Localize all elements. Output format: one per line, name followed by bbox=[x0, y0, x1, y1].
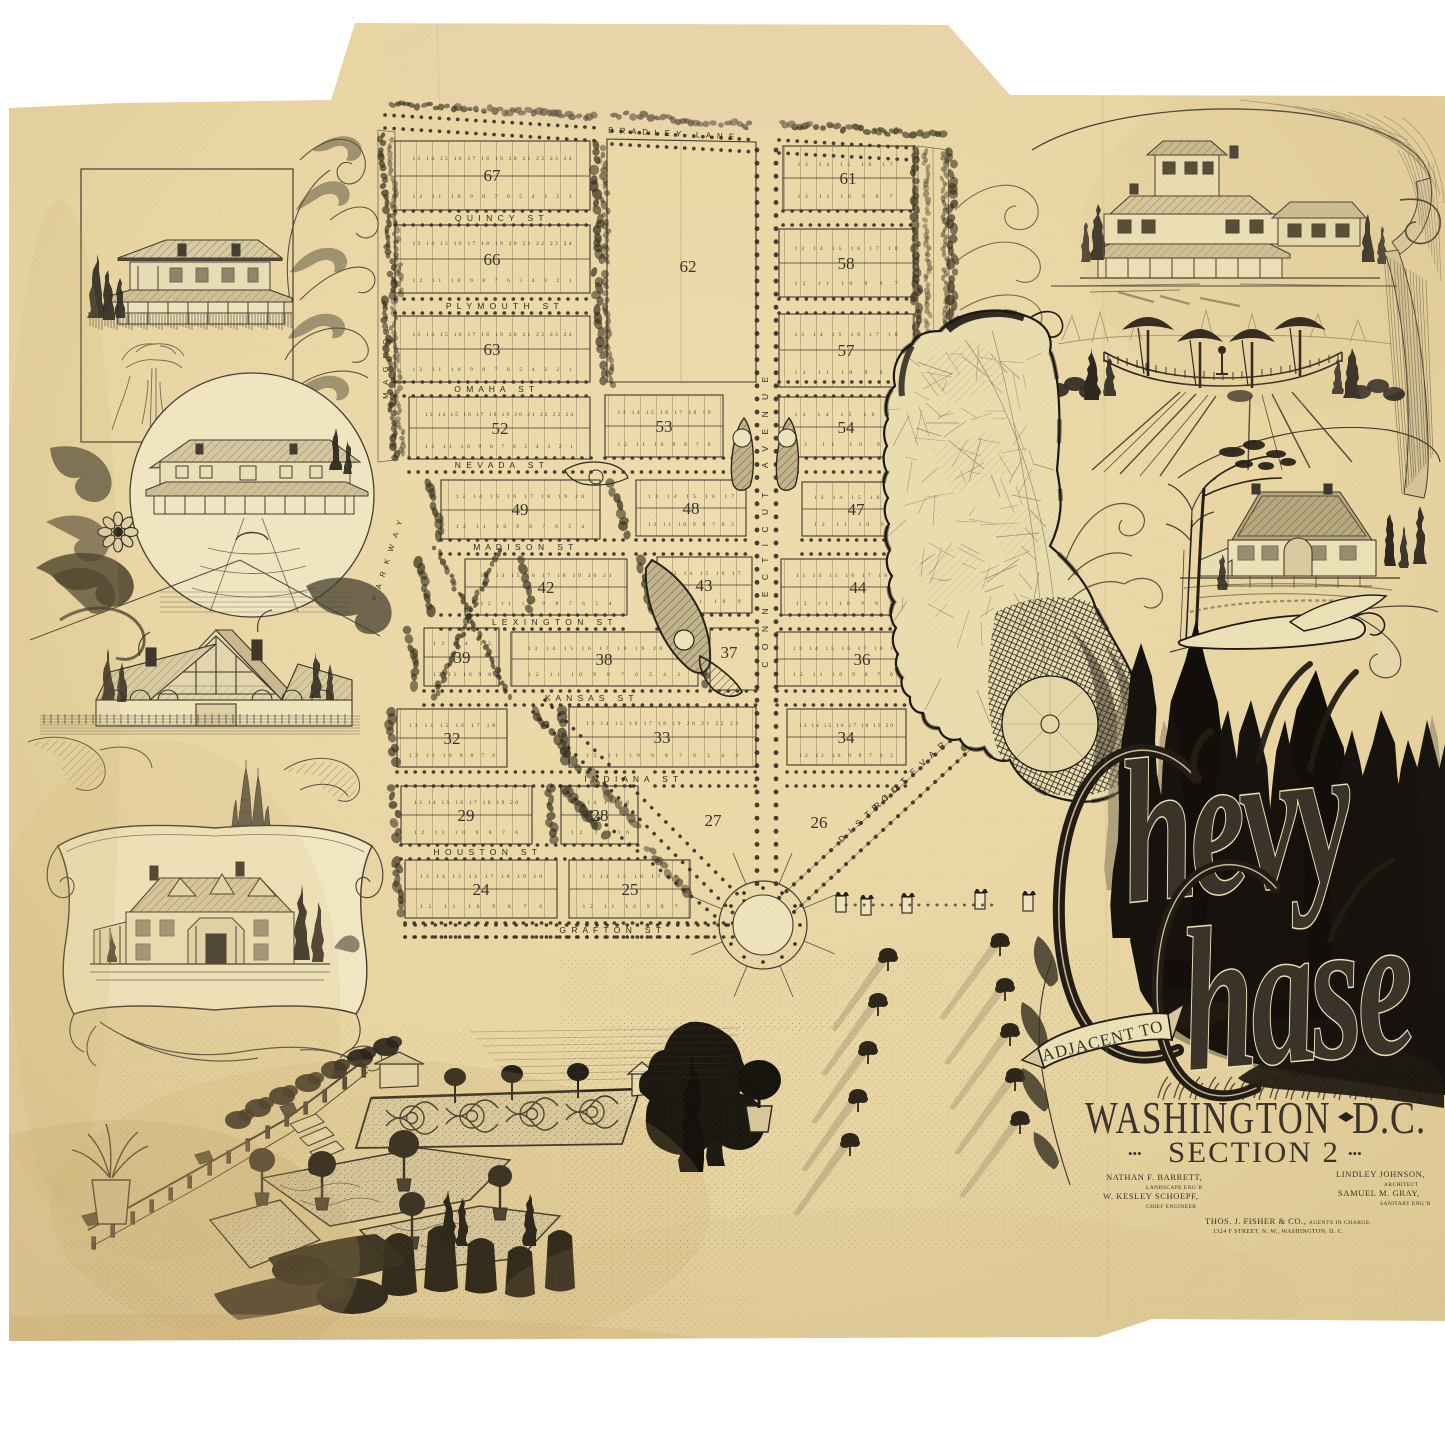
svg-text:24: 24 bbox=[473, 880, 491, 899]
svg-text:57: 57 bbox=[838, 341, 856, 360]
svg-text:54: 54 bbox=[838, 418, 856, 437]
svg-text:67: 67 bbox=[484, 166, 502, 185]
svg-text:32: 32 bbox=[444, 729, 461, 748]
svg-text:LINDLEY JOHNSON,: LINDLEY JOHNSON, bbox=[1336, 1169, 1425, 1179]
svg-text:62: 62 bbox=[680, 257, 697, 276]
svg-text:36: 36 bbox=[854, 650, 871, 669]
svg-text:L E X I N G T O N S T: L E X I N G T O N S T bbox=[492, 617, 614, 627]
svg-text:13 14 15 16 17 18 19 20: 13 14 15 16 17 18 19 20 bbox=[420, 874, 542, 880]
svg-text:27: 27 bbox=[705, 811, 723, 830]
svg-text:C O N N E C T I C U T A V E: C O N N E C T I C U T A V E N U E bbox=[760, 372, 770, 667]
svg-text:13 14 15 16 17 18 19 20: 13 14 15 16 17 18 19 20 bbox=[414, 800, 518, 806]
svg-text:NATHAN F. BARRETT,: NATHAN F. BARRETT, bbox=[1106, 1172, 1202, 1182]
svg-text:48: 48 bbox=[683, 499, 700, 518]
svg-text:13 14 15 16 17 18 19 20: 13 14 15 16 17 18 19 20 bbox=[456, 494, 584, 500]
svg-text:SECTION 2: SECTION 2 bbox=[1168, 1136, 1340, 1169]
svg-text:52: 52 bbox=[492, 419, 509, 438]
svg-text:42: 42 bbox=[538, 578, 555, 597]
svg-text:O M A H A S T: O M A H A S T bbox=[454, 384, 535, 394]
svg-text:29: 29 bbox=[458, 806, 475, 825]
svg-text:49: 49 bbox=[512, 500, 529, 519]
svg-text:1324 F STREET, N. W., WASHINGT: 1324 F STREET, N. W., WASHINGTON, D. C. bbox=[1213, 1229, 1344, 1235]
svg-text:H O U S T O N S T: H O U S T O N S T bbox=[433, 847, 538, 857]
svg-text:N E V A D A S T: N E V A D A S T bbox=[455, 460, 546, 470]
svg-text:43: 43 bbox=[696, 576, 713, 595]
svg-text:M A D I S O N S T: M A D I S O N S T bbox=[473, 542, 575, 552]
svg-text:D.C.: D.C. bbox=[1352, 1092, 1426, 1143]
svg-text:•••: ••• bbox=[1348, 1146, 1362, 1161]
svg-text:63: 63 bbox=[484, 340, 501, 359]
svg-text:13 14 15 16 17 18 19 20: 13 14 15 16 17 18 19 20 bbox=[799, 723, 893, 729]
svg-text:hase: hase bbox=[1172, 869, 1420, 1114]
svg-text:38: 38 bbox=[596, 650, 613, 669]
svg-text:SAMUEL M. GRAY,: SAMUEL M. GRAY, bbox=[1338, 1188, 1420, 1198]
svg-text:P L Y M O U T H S T: P L Y M O U T H S T bbox=[446, 301, 560, 311]
svg-text:•••: ••• bbox=[1128, 1146, 1142, 1161]
svg-text:33: 33 bbox=[654, 728, 671, 747]
svg-text:CHIEF ENGINEER: CHIEF ENGINEER bbox=[1146, 1204, 1196, 1210]
svg-text:53: 53 bbox=[656, 417, 673, 436]
svg-text:44: 44 bbox=[850, 578, 868, 597]
svg-text:Q U I N C Y S T: Q U I N C Y S T bbox=[455, 213, 545, 223]
svg-text:37: 37 bbox=[721, 643, 739, 662]
svg-text:SANITARY ENG’R: SANITARY ENG’R bbox=[1380, 1201, 1431, 1207]
svg-text:58: 58 bbox=[838, 254, 855, 273]
svg-text:25: 25 bbox=[622, 880, 639, 899]
svg-text:26: 26 bbox=[811, 813, 828, 832]
svg-text:61: 61 bbox=[840, 169, 857, 188]
svg-text:39: 39 bbox=[454, 648, 471, 667]
svg-text:66: 66 bbox=[484, 250, 501, 269]
svg-text:K A N S A S S T: K A N S A S S T bbox=[545, 693, 635, 703]
svg-text:47: 47 bbox=[848, 500, 866, 519]
svg-text:34: 34 bbox=[838, 728, 856, 747]
svg-text:W. KESLEY SCHOEPF,: W. KESLEY SCHOEPF, bbox=[1103, 1191, 1198, 1201]
